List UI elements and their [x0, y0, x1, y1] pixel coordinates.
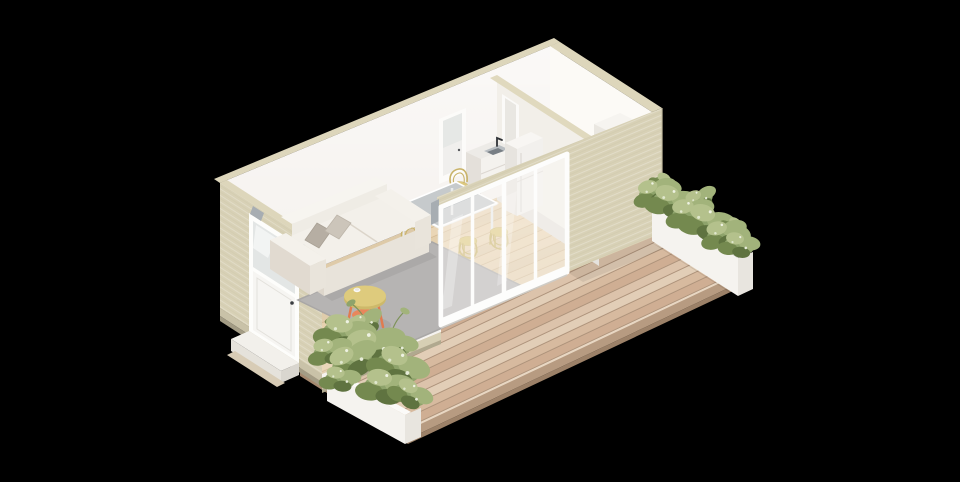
cup-inner [355, 288, 359, 291]
isometric-floorplan-render [0, 0, 960, 482]
wall-flashing [431, 199, 439, 225]
front-door-handle [290, 301, 294, 305]
render-stage [0, 0, 960, 482]
back-door-handle [458, 149, 460, 151]
planter-right-end [738, 252, 753, 296]
